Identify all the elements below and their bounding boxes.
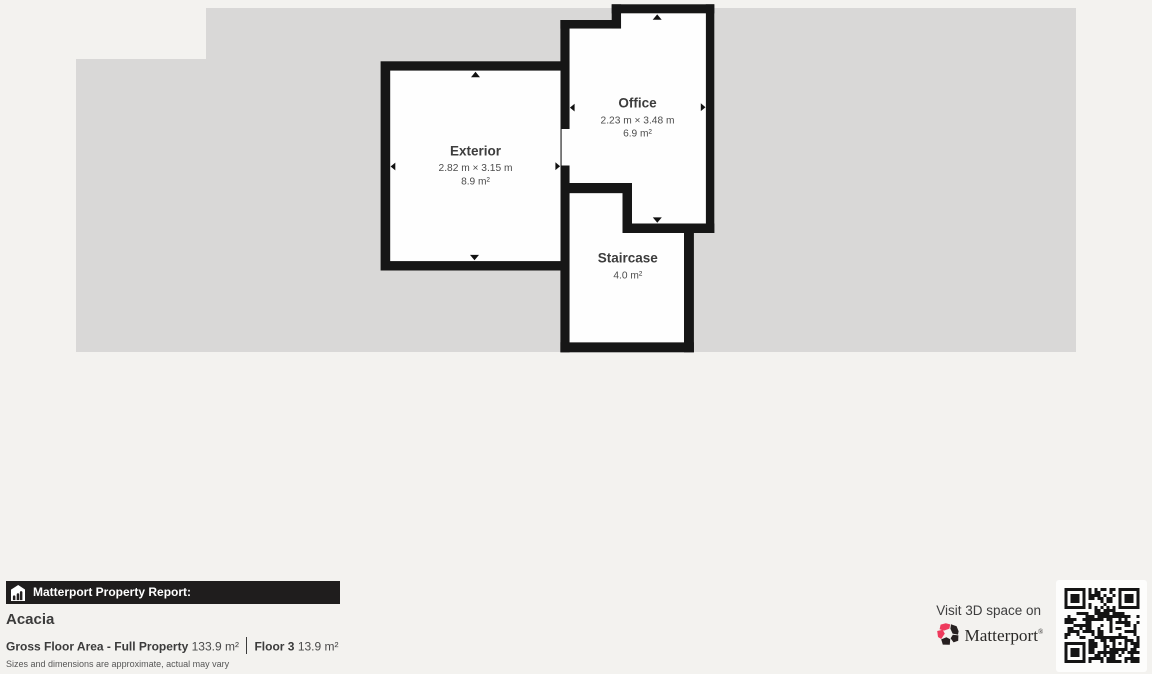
svg-text:2.82 m × 3.15 m: 2.82 m × 3.15 m [439,163,513,174]
svg-text:6.9 m²: 6.9 m² [623,128,652,139]
svg-text:4.0 m²: 4.0 m² [613,271,642,282]
svg-text:Office: Office [618,96,657,111]
svg-text:2.23 m × 3.48 m: 2.23 m × 3.48 m [601,116,675,127]
svg-text:Staircase: Staircase [598,251,659,266]
svg-text:Exterior: Exterior [450,144,502,159]
svg-text:8.9 m²: 8.9 m² [461,176,490,187]
